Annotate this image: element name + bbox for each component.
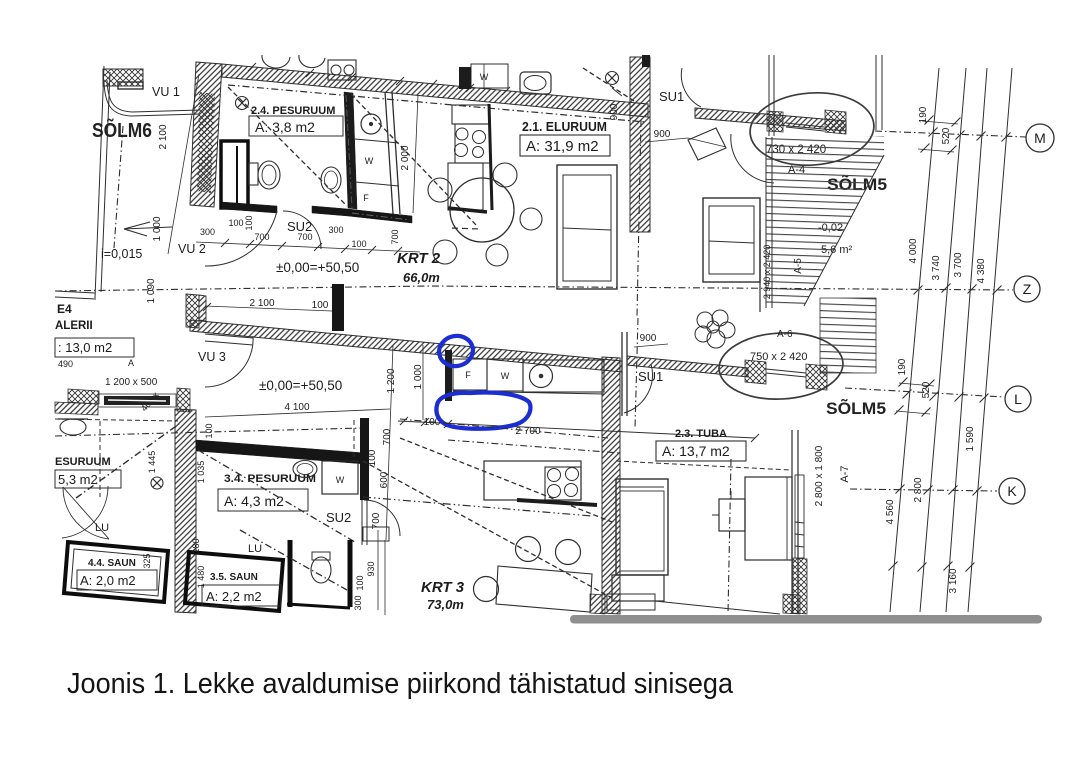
svg-text:Joonis 1. Lekke avaldumise pii: Joonis 1. Lekke avaldumise piirkond tähi… bbox=[67, 668, 734, 700]
svg-text:SU1: SU1 bbox=[659, 89, 684, 104]
svg-text:K: K bbox=[1007, 483, 1017, 499]
svg-text:2.4. PESURUUM: 2.4. PESURUUM bbox=[251, 105, 335, 117]
svg-text:4 560: 4 560 bbox=[885, 499, 896, 524]
svg-text:W: W bbox=[480, 72, 489, 82]
svg-text:100: 100 bbox=[204, 423, 214, 438]
svg-text:A-6: A-6 bbox=[777, 329, 793, 340]
svg-text:A: 13,7 m2: A: 13,7 m2 bbox=[662, 443, 730, 459]
svg-text:VU 1: VU 1 bbox=[152, 85, 180, 99]
svg-text:2 940 x 2 420: 2 940 x 2 420 bbox=[762, 245, 772, 300]
svg-text:: 13,0 m2: : 13,0 m2 bbox=[58, 340, 112, 355]
svg-text:1 000: 1 000 bbox=[152, 216, 163, 241]
svg-text:700: 700 bbox=[382, 428, 393, 445]
svg-text:LU: LU bbox=[95, 522, 109, 534]
svg-text:SÕLM6: SÕLM6 bbox=[92, 118, 152, 142]
svg-text:A: 2,2 m2: A: 2,2 m2 bbox=[206, 589, 262, 604]
svg-text:930: 930 bbox=[366, 561, 376, 576]
svg-text:2 800 x 1 800: 2 800 x 1 800 bbox=[814, 445, 825, 506]
svg-text:SU2: SU2 bbox=[326, 510, 351, 525]
svg-text:ESURUUM: ESURUUM bbox=[55, 456, 111, 468]
svg-text:520: 520 bbox=[941, 127, 952, 144]
svg-text:3.5. SAUN: 3.5. SAUN bbox=[210, 572, 258, 583]
svg-text:3 160: 3 160 bbox=[948, 568, 959, 593]
svg-text:190: 190 bbox=[918, 106, 929, 123]
svg-text:1 590: 1 590 bbox=[965, 426, 976, 451]
svg-text:750 x 2 420: 750 x 2 420 bbox=[750, 351, 808, 363]
svg-text:100: 100 bbox=[312, 300, 329, 311]
svg-text:300: 300 bbox=[353, 595, 363, 610]
svg-text:3 700: 3 700 bbox=[953, 252, 964, 277]
svg-text:520: 520 bbox=[921, 381, 932, 398]
svg-text:2 100: 2 100 bbox=[249, 298, 274, 309]
svg-text:±0,00=+50,50: ±0,00=+50,50 bbox=[276, 260, 359, 275]
svg-text:700: 700 bbox=[297, 232, 312, 242]
svg-text:±0,00=+50,50: ±0,00=+50,50 bbox=[259, 378, 342, 393]
svg-text:A: A bbox=[128, 358, 134, 368]
svg-text:ALERII: ALERII bbox=[55, 320, 93, 332]
svg-text:4 380: 4 380 bbox=[976, 258, 987, 283]
svg-text:100: 100 bbox=[228, 218, 243, 228]
svg-text:1 200 x 500: 1 200 x 500 bbox=[105, 377, 158, 388]
svg-text:1 035: 1 035 bbox=[196, 461, 206, 484]
svg-text:A: 2,0 m2: A: 2,0 m2 bbox=[80, 573, 136, 588]
svg-text:2 000: 2 000 bbox=[400, 145, 411, 170]
svg-text:SÕLM5: SÕLM5 bbox=[826, 398, 886, 418]
svg-text:2 100: 2 100 bbox=[158, 124, 169, 149]
svg-text:2 700: 2 700 bbox=[515, 426, 540, 437]
svg-text:F: F bbox=[465, 370, 471, 380]
svg-text:2 800: 2 800 bbox=[913, 477, 924, 502]
svg-text:2.1. ELURUUM: 2.1. ELURUUM bbox=[522, 120, 607, 134]
svg-text:M: M bbox=[1034, 130, 1046, 146]
svg-text:4 000: 4 000 bbox=[908, 238, 919, 263]
svg-text:W: W bbox=[365, 156, 374, 166]
svg-text:2.3. TUBA: 2.3. TUBA bbox=[675, 428, 727, 440]
svg-text:VU 2: VU 2 bbox=[178, 242, 206, 256]
svg-text:A-5: A-5 bbox=[793, 258, 804, 274]
svg-text:KRT 3: KRT 3 bbox=[421, 579, 465, 596]
svg-text:100: 100 bbox=[367, 449, 378, 466]
svg-text:190: 190 bbox=[897, 358, 908, 375]
svg-text:L: L bbox=[1014, 391, 1022, 407]
svg-text:300: 300 bbox=[328, 225, 343, 235]
svg-text:100: 100 bbox=[244, 215, 254, 230]
svg-text:900: 900 bbox=[654, 129, 671, 140]
svg-text:i=0,015: i=0,015 bbox=[101, 247, 142, 261]
svg-text:A: 3,8 m2: A: 3,8 m2 bbox=[255, 119, 315, 135]
svg-text:5,3 m2: 5,3 m2 bbox=[58, 472, 98, 487]
svg-text:325: 325 bbox=[142, 553, 152, 568]
svg-text:LU: LU bbox=[248, 543, 262, 555]
svg-text:1 480: 1 480 bbox=[196, 566, 206, 589]
svg-text:F: F bbox=[363, 193, 369, 203]
svg-text:Z: Z bbox=[1023, 281, 1032, 297]
svg-text:E4: E4 bbox=[57, 302, 72, 316]
svg-text:100: 100 bbox=[355, 575, 365, 590]
svg-text:1 000: 1 000 bbox=[413, 364, 424, 389]
svg-text:3.4. PESURUUM: 3.4. PESURUUM bbox=[224, 473, 316, 485]
svg-text:1 445: 1 445 bbox=[147, 451, 157, 474]
svg-text:SU1: SU1 bbox=[638, 369, 663, 384]
svg-text:180: 180 bbox=[191, 538, 201, 553]
svg-text:1 090: 1 090 bbox=[146, 278, 157, 303]
svg-text:700: 700 bbox=[390, 229, 400, 244]
svg-text:W: W bbox=[501, 371, 510, 381]
svg-text:A-7: A-7 bbox=[839, 465, 851, 482]
svg-text:300: 300 bbox=[200, 227, 215, 237]
svg-text:A: 31,9 m2: A: 31,9 m2 bbox=[526, 138, 599, 155]
svg-text:490: 490 bbox=[58, 359, 73, 369]
svg-text:VU 3: VU 3 bbox=[198, 350, 226, 364]
svg-text:4 100: 4 100 bbox=[284, 402, 309, 413]
svg-text:3 740: 3 740 bbox=[931, 255, 942, 280]
svg-text:100: 100 bbox=[351, 239, 366, 249]
svg-text:73,0m: 73,0m bbox=[427, 597, 464, 612]
svg-text:4.4. SAUN: 4.4. SAUN bbox=[88, 558, 136, 569]
svg-text:900: 900 bbox=[609, 103, 620, 120]
svg-text:900: 900 bbox=[640, 333, 657, 344]
svg-text:66,0m: 66,0m bbox=[403, 270, 440, 285]
svg-text:W: W bbox=[336, 475, 345, 485]
svg-text:KRT 2: KRT 2 bbox=[397, 250, 441, 267]
